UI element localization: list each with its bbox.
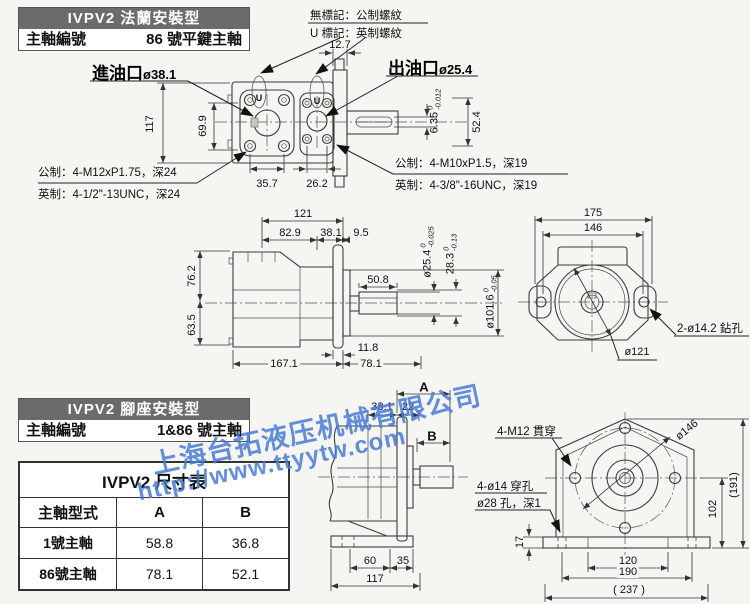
table-row: 86號主軸 78.1 52.1 bbox=[19, 559, 289, 591]
dim-38-1-foot: 38.1 bbox=[371, 401, 392, 413]
dim-78-1: 78.1 bbox=[358, 358, 383, 370]
u-mark-port2: U bbox=[314, 96, 321, 106]
flange-spindle-label: 主軸編號 bbox=[26, 29, 86, 50]
note-m12-through: 4-M12 貫穿 bbox=[497, 423, 556, 439]
outlet-port-label: 出油口ø25.4 bbox=[388, 54, 472, 79]
size-table-header-type: 主軸型式 bbox=[19, 498, 117, 528]
foot-title-block: IVPV2 腳座安裝型 主軸編號 1&86 號主軸 bbox=[18, 398, 250, 442]
dim-76-2: 76.2 bbox=[186, 265, 198, 286]
dim-25-4-tolerance: ø25.4 0-0.025 bbox=[420, 226, 435, 277]
dim-117-foot: 117 bbox=[366, 573, 384, 585]
inlet-port-label: 進油口ø38.1 bbox=[92, 59, 176, 84]
dim-35: 35 bbox=[397, 555, 409, 567]
row2-a: 78.1 bbox=[117, 559, 203, 591]
dim-60: 60 bbox=[364, 555, 376, 567]
row1-type: 1號主軸 bbox=[19, 528, 117, 559]
size-table: IVPV2 尺寸表 主軸型式 A B 1號主軸 58.8 36.8 86號主軸 … bbox=[18, 461, 290, 591]
dim-11-8: 11.8 bbox=[358, 342, 379, 354]
dim-102: 102 bbox=[707, 500, 719, 518]
row2-type: 86號主軸 bbox=[19, 559, 117, 591]
outlet-port-diameter: ø25.4 bbox=[439, 62, 472, 77]
foot-title-bar: IVPV2 腳座安裝型 bbox=[19, 399, 249, 420]
inlet-port-name: 進油口 bbox=[92, 64, 143, 83]
dim-12-7: 12.7 bbox=[329, 39, 350, 51]
dim-28-3-tolerance: 28.3 0-0.13 bbox=[443, 234, 458, 275]
dim-63-5: 63.5 bbox=[186, 314, 198, 335]
dim-101-6-limits: 0-0.05 bbox=[483, 275, 498, 292]
lower-limit: -0.012 bbox=[434, 89, 442, 110]
note-metric-outlet: 公制：4-M10xP1.5，深19 bbox=[395, 155, 527, 171]
dim-25-4: ø25.4 bbox=[421, 250, 433, 278]
flange-title-bar: IVPV2 法蘭安裝型 bbox=[19, 8, 249, 29]
outlet-port-name: 出油口 bbox=[388, 59, 439, 78]
u-mark-port1: U bbox=[256, 93, 263, 103]
dim-a-ref: A bbox=[419, 380, 428, 395]
dim-191: (191) bbox=[728, 472, 740, 498]
dim-6-35-tolerance: 6.35 0-0.012 bbox=[427, 89, 442, 134]
dim-25-4-limits: 0-0.025 bbox=[420, 226, 435, 247]
dim-190: 190 bbox=[617, 566, 639, 578]
flange-title-block: IVPV2 法蘭安裝型 主軸編號 86 號平鍵主軸 bbox=[18, 7, 250, 51]
lower-limit: -0.05 bbox=[490, 275, 498, 292]
dim-dia-121: ø121 bbox=[624, 346, 649, 358]
foot-spindle-value: 1&86 號主軸 bbox=[157, 420, 242, 441]
dim-b-ref: B bbox=[427, 429, 436, 444]
size-table-header-a: A bbox=[117, 498, 203, 528]
drawing-sheet: IVPV2 法蘭安裝型 主軸編號 86 號平鍵主軸 IVPV2 腳座安裝型 主軸… bbox=[0, 0, 750, 604]
lower-limit: -0.025 bbox=[427, 226, 435, 247]
dim-69-9: 69.9 bbox=[197, 115, 209, 136]
lower-limit: -0.13 bbox=[450, 234, 458, 251]
dim-22: 22 bbox=[402, 401, 414, 413]
dim-28-3-limits: 0-0.13 bbox=[443, 234, 458, 251]
dim-117: 117 bbox=[144, 115, 156, 133]
note-imperial-thread: U 標記：英制螺紋 bbox=[310, 25, 402, 41]
flange-spindle-value: 86 號平鍵主軸 bbox=[146, 29, 242, 50]
dim-17: 17 bbox=[514, 536, 526, 548]
dim-101-6-tolerance: ø101.6 0-0.05 bbox=[483, 275, 498, 328]
row1-b: 36.8 bbox=[203, 528, 290, 559]
note-metric-front: 公制：4-M12xP1.75，深24 bbox=[38, 164, 177, 180]
size-table-header-b: B bbox=[203, 498, 290, 528]
dim-6-35-limits: 0-0.012 bbox=[427, 89, 442, 110]
row2-b: 52.1 bbox=[203, 559, 290, 591]
flange-spindle-row: 主軸編號 86 號平鍵主軸 bbox=[19, 29, 249, 50]
dim-52-4: 52.4 bbox=[471, 111, 483, 132]
note-imperial-front: 英制：4-1/2"-13UNC，深24 bbox=[38, 186, 180, 202]
note-drill-holes: 2-ø14.2 鉆孔 bbox=[677, 320, 743, 336]
dim-6-35: 6.35 bbox=[428, 112, 440, 133]
note-imperial-outlet: 英制：4-3/8"-16UNC，深19 bbox=[395, 177, 537, 193]
note-metric-thread: 無標記：公制螺紋 bbox=[310, 7, 402, 23]
foot-spindle-label: 主軸編號 bbox=[26, 420, 86, 441]
foot-spindle-row: 主軸編號 1&86 號主軸 bbox=[19, 420, 249, 441]
dim-82-9: 82.9 bbox=[279, 227, 300, 239]
dim-101-6: ø101.6 bbox=[484, 294, 496, 328]
note-4-holes: 4-ø14 穿孔 bbox=[477, 478, 533, 494]
dim-50-8: 50.8 bbox=[367, 274, 388, 286]
dim-35-7: 35.7 bbox=[256, 178, 277, 190]
dim-175: 175 bbox=[584, 207, 602, 219]
dim-121: 121 bbox=[294, 208, 312, 220]
row1-a: 58.8 bbox=[117, 528, 203, 559]
dim-167-1: 167.1 bbox=[268, 358, 300, 370]
dim-146: 146 bbox=[584, 222, 602, 234]
dim-28-3: 28.3 bbox=[444, 253, 456, 274]
dim-237: ( 237 ) bbox=[611, 584, 647, 596]
table-row: 1號主軸 58.8 36.8 bbox=[19, 528, 289, 559]
dim-9-5: 9.5 bbox=[353, 227, 368, 239]
dim-38-1: 38.1 bbox=[320, 227, 341, 239]
note-counterbore: ø28 孔，深1 bbox=[477, 495, 541, 511]
size-table-title: IVPV2 尺寸表 bbox=[19, 462, 289, 498]
inlet-port-diameter: ø38.1 bbox=[143, 67, 176, 82]
dim-26-2: 26.2 bbox=[306, 178, 327, 190]
